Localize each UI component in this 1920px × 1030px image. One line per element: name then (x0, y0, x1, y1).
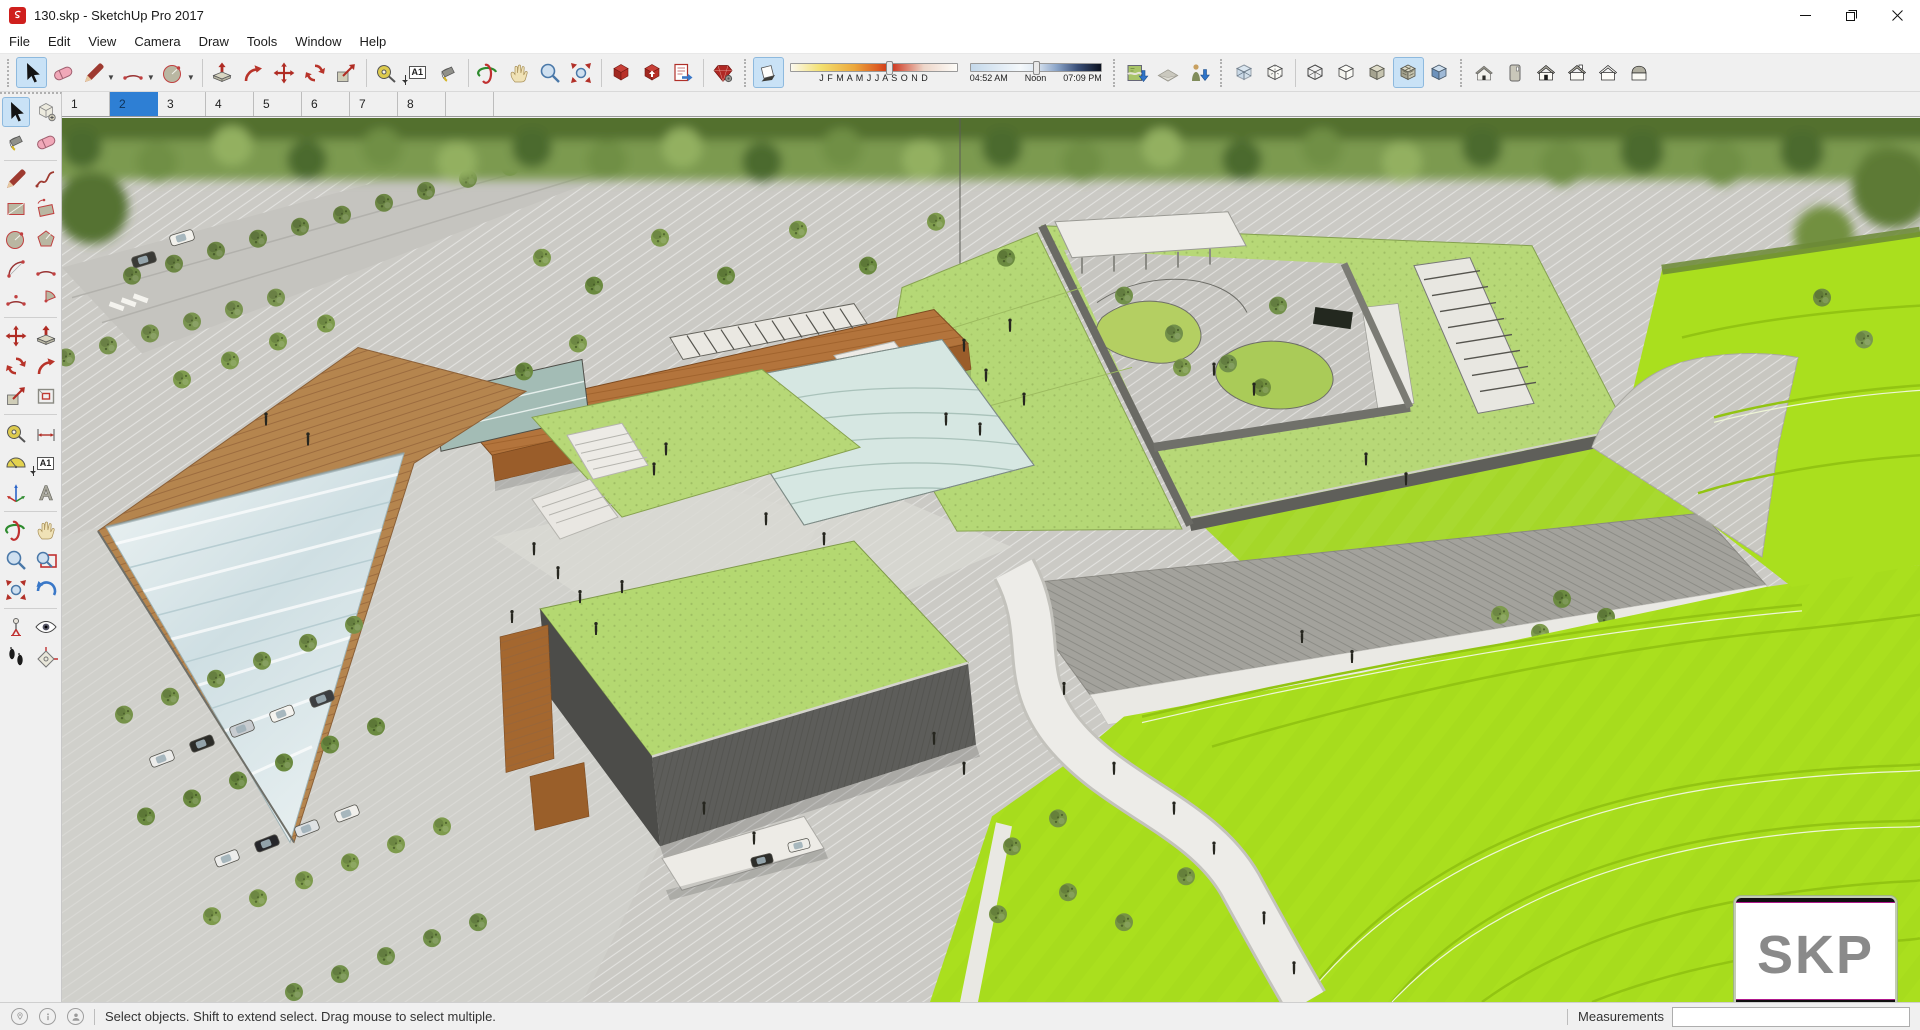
watermark-text: SKP (1757, 924, 1874, 986)
large-tool-set: A1 (0, 92, 62, 1002)
palette-zoom-window-tool[interactable] (32, 545, 60, 575)
tape-measure-tool-button[interactable] (371, 57, 402, 88)
palette-dimension-tool[interactable] (32, 418, 60, 448)
follow-me-tool-button[interactable] (238, 57, 269, 88)
location-toolbar-grip[interactable] (1113, 59, 1117, 87)
back-view-button[interactable] (1593, 57, 1624, 88)
arc-tool-button[interactable] (118, 57, 149, 88)
time-start-label: 04:52 AM (970, 73, 1008, 83)
palette-protractor-tool[interactable] (2, 448, 30, 478)
palette-arc-tool[interactable] (2, 254, 30, 284)
time-slider-thumb[interactable] (1033, 61, 1040, 75)
palette-move-tool[interactable] (2, 321, 30, 351)
scale-tool-button[interactable] (331, 57, 362, 88)
shapes-dropdown-caret[interactable]: ▼ (187, 73, 195, 82)
menu-bar: File Edit View Camera Draw Tools Window … (0, 30, 1920, 54)
shaded-style-button[interactable] (1362, 57, 1393, 88)
hidden-line-style-button[interactable] (1331, 57, 1362, 88)
pan-tool-button[interactable] (504, 57, 535, 88)
extension-warehouse-button[interactable] (708, 57, 739, 88)
top-view-button[interactable] (1500, 57, 1531, 88)
palette-pie-tool[interactable] (32, 284, 60, 314)
palette-push-pull-tool[interactable] (32, 321, 60, 351)
title-bar: 130.skp - SketchUp Pro 2017 (0, 0, 1920, 30)
close-button[interactable] (1874, 0, 1920, 30)
status-bar: Select objects. Shift to extend select. … (0, 1002, 1920, 1030)
palette-position-camera-tool[interactable] (2, 612, 30, 642)
sketchup-window: 130.skp - SketchUp Pro 2017 File Edit Vi… (0, 0, 1920, 1030)
orbit-tool-button[interactable] (473, 57, 504, 88)
palette-eraser-tool[interactable] (32, 127, 60, 157)
viewport-3d-model[interactable]: SKP (62, 118, 1920, 1002)
wireframe-style-button[interactable] (1300, 57, 1331, 88)
shaded-with-textures-style-button[interactable] (1393, 57, 1424, 88)
shadow-toolbar: J F M A M J J A S O N D 04:52 AM Noon 07… (753, 57, 1108, 88)
palette-line-tool[interactable] (2, 164, 30, 194)
views-toolbar-grip[interactable] (1460, 59, 1464, 87)
shadow-time-slider[interactable]: 04:52 AM Noon 07:09 PM (970, 63, 1102, 83)
palette-look-around-tool[interactable] (32, 612, 60, 642)
skp-watermark: SKP (1734, 896, 1897, 1002)
sketchup-logo-icon (9, 7, 26, 24)
watermark-bottom-bar (1736, 999, 1895, 1002)
palette-scale-tool[interactable] (2, 381, 30, 411)
status-hint-text: Select objects. Shift to extend select. … (105, 1009, 496, 1024)
scene-tabs-bar: 1 2 3 4 5 6 7 8 (62, 92, 1920, 117)
palette-axes-tool[interactable] (2, 478, 30, 508)
palette-tape-measure-tool[interactable] (2, 418, 30, 448)
palette-paint-bucket-tool[interactable] (2, 127, 30, 157)
palette-make-component-tool[interactable] (32, 97, 60, 127)
palette-rotate-tool[interactable] (2, 351, 30, 381)
text-tool-button[interactable]: A1 (402, 57, 433, 88)
palette-text-tool-icon: A1 (37, 457, 55, 470)
x-ray-style-button[interactable] (1229, 57, 1260, 88)
line-dropdown-caret[interactable]: ▼ (107, 73, 115, 82)
time-end-label: 07:09 PM (1063, 73, 1102, 83)
palette-3d-text-tool[interactable] (32, 478, 60, 508)
shadow-date-slider[interactable]: J F M A M J J A S O N D (790, 63, 958, 83)
front-view-button[interactable] (1531, 57, 1562, 88)
date-slider-months: J F M A M J J A S O N D (790, 73, 958, 83)
toolbar-grip[interactable] (7, 59, 11, 87)
push-pull-tool-button[interactable] (207, 57, 238, 88)
photo-textures-button[interactable] (1184, 57, 1215, 88)
select-tool-button[interactable] (16, 57, 47, 88)
palette-pan-tool[interactable] (32, 515, 60, 545)
palette-2pt-arc-tool[interactable] (32, 254, 60, 284)
share-model-button[interactable] (637, 57, 668, 88)
menu-draw[interactable]: Draw (190, 31, 238, 52)
back-edges-style-button[interactable] (1260, 57, 1291, 88)
menu-help[interactable]: Help (351, 31, 396, 52)
menu-window[interactable]: Window (286, 31, 350, 52)
palette-polygon-tool[interactable] (32, 224, 60, 254)
palette-select-tool[interactable] (2, 97, 30, 127)
credits-info-icon[interactable] (39, 1008, 56, 1025)
palette-orbit-tool[interactable] (2, 515, 30, 545)
3d-warehouse-button[interactable] (606, 57, 637, 88)
monochrome-style-button[interactable] (1424, 57, 1455, 88)
scene-tab-1[interactable]: 1 (62, 92, 110, 116)
scene-tab-8[interactable]: 8 (398, 92, 446, 116)
palette-follow-me-tool[interactable] (32, 351, 60, 381)
toggle-terrain-button[interactable] (1153, 57, 1184, 88)
menu-view[interactable]: View (79, 31, 125, 52)
sign-in-icon[interactable] (67, 1008, 84, 1025)
move-tool-button[interactable] (269, 57, 300, 88)
left-view-button[interactable] (1624, 57, 1655, 88)
window-title: 130.skp - SketchUp Pro 2017 (34, 8, 204, 23)
model-canvas[interactable] (62, 118, 1920, 1002)
scene-tab-empty (446, 92, 494, 116)
scene-tab-5[interactable]: 5 (254, 92, 302, 116)
menu-tools[interactable]: Tools (238, 31, 286, 52)
date-slider-thumb[interactable] (886, 61, 893, 75)
paint-bucket-tool-button[interactable] (433, 57, 464, 88)
restore-button[interactable] (1828, 0, 1874, 30)
palette-3pt-arc-tool[interactable] (2, 284, 30, 314)
scene-tab-7[interactable]: 7 (350, 92, 398, 116)
minimize-button[interactable] (1782, 0, 1828, 30)
palette-text-tool[interactable]: A1 (32, 448, 60, 478)
measurements-label: Measurements (1578, 1009, 1664, 1024)
text-tool-icon: A1 (409, 66, 427, 79)
menu-file[interactable]: File (0, 31, 39, 52)
geolocation-icon[interactable] (11, 1008, 28, 1025)
palette-previous-view-tool[interactable] (32, 575, 60, 605)
menu-camera[interactable]: Camera (125, 31, 189, 52)
add-location-button[interactable] (1122, 57, 1153, 88)
palette-section-plane-tool[interactable] (32, 642, 60, 672)
palette-rotated-rectangle-tool[interactable] (32, 194, 60, 224)
palette-zoom-tool[interactable] (2, 545, 30, 575)
scene-tab-2[interactable]: 2 (110, 92, 158, 116)
right-view-button[interactable] (1562, 57, 1593, 88)
palette-zoom-extents-tool[interactable] (2, 575, 30, 605)
shapes-tool-button[interactable] (158, 57, 189, 88)
watermark-top-bar (1736, 898, 1895, 903)
rotate-tool-button[interactable] (300, 57, 331, 88)
eraser-tool-button[interactable] (47, 57, 78, 88)
scene-tab-4[interactable]: 4 (206, 92, 254, 116)
main-toolbar: ▼ ▼ ▼ A1 J F M A M J J A S O N D (0, 54, 1920, 92)
line-tool-button[interactable] (78, 57, 109, 88)
styles-toolbar-grip[interactable] (1220, 59, 1224, 87)
palette-offset-tool[interactable] (32, 381, 60, 411)
shadows-toggle-button[interactable] (753, 57, 784, 88)
iso-view-button[interactable] (1469, 57, 1500, 88)
send-to-layout-button[interactable] (668, 57, 699, 88)
palette-circle-tool[interactable] (2, 224, 30, 254)
zoom-tool-button[interactable] (535, 57, 566, 88)
shadow-toolbar-grip[interactable] (744, 59, 748, 87)
palette-rectangle-tool[interactable] (2, 194, 30, 224)
measurements-input[interactable] (1672, 1007, 1910, 1027)
scene-tab-6[interactable]: 6 (302, 92, 350, 116)
zoom-extents-button[interactable] (566, 57, 597, 88)
menu-edit[interactable]: Edit (39, 31, 79, 52)
scene-tab-3[interactable]: 3 (158, 92, 206, 116)
arc-dropdown-caret[interactable]: ▼ (147, 73, 155, 82)
palette-freehand-tool[interactable] (32, 164, 60, 194)
palette-walk-tool[interactable] (2, 642, 30, 672)
